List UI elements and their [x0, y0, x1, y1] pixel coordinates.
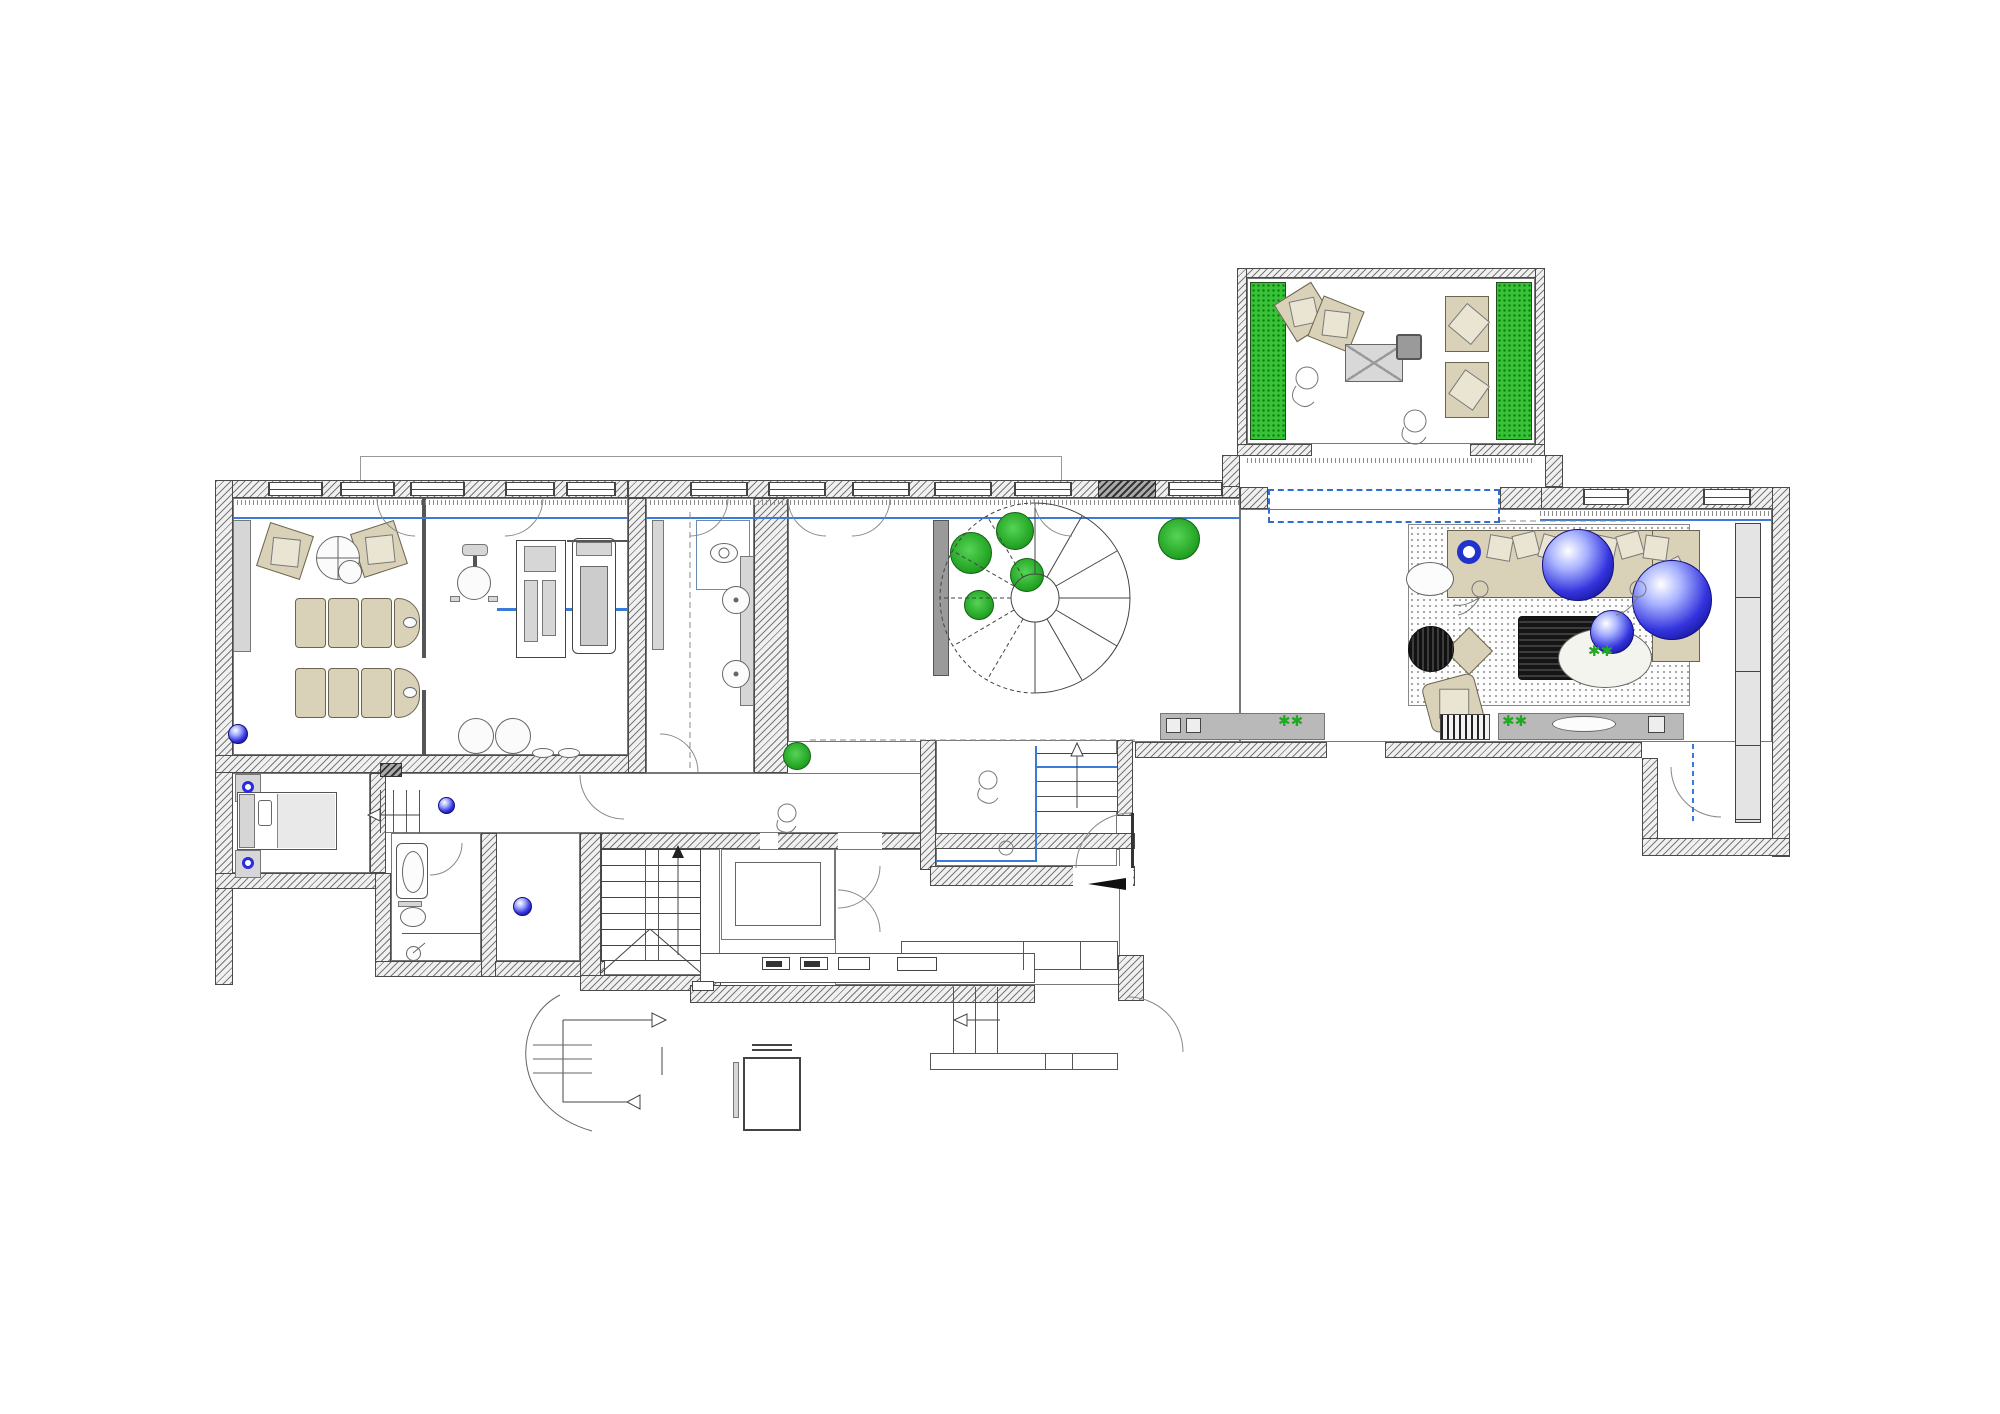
- sliding-door-opening: [1268, 489, 1500, 523]
- window: [690, 482, 748, 496]
- blue-sphere-large: [1542, 529, 1614, 601]
- platter: [1552, 716, 1616, 732]
- sofa-cushion: [1486, 534, 1514, 562]
- multigym-seat: [524, 546, 556, 572]
- hall-steps: [1037, 753, 1117, 812]
- door-gap-hall: [1073, 866, 1133, 886]
- wall-varanda-right: [1535, 268, 1545, 456]
- front-door-leaf: [1131, 813, 1134, 868]
- arrow-head-open: [627, 1095, 640, 1109]
- window: [934, 482, 992, 496]
- wall-kitchen-bottom: [690, 985, 1035, 1003]
- lamp-ring: [242, 781, 254, 793]
- round-black-pouf: [1408, 626, 1454, 672]
- varanda-table: [1345, 344, 1403, 382]
- bookshelf: [1440, 714, 1490, 740]
- glazing-line: [1540, 519, 1772, 521]
- wall-opening-stub-left: [1240, 487, 1268, 509]
- bed-headboard: [239, 794, 255, 848]
- insulation-strip: [1540, 511, 1772, 516]
- wall-lavabo-left: [628, 498, 646, 773]
- porch-joint: [1023, 941, 1024, 970]
- plant-icon: ✱✱: [1588, 644, 1613, 659]
- wall-varanda-bottom-right: [1470, 444, 1545, 456]
- plant-icon: [950, 532, 992, 574]
- partition-gym-2: [422, 690, 426, 755]
- exercise-bike-body: [457, 566, 491, 600]
- sofa-cushion: [1642, 534, 1669, 561]
- kitchen-appliance: [800, 957, 828, 970]
- exercise-bike-pedal: [450, 596, 460, 602]
- plant-icon: [996, 512, 1034, 550]
- massage-table-pad: [328, 598, 359, 648]
- plant-icon: ✱✱: [1278, 714, 1303, 729]
- step-line: [380, 790, 381, 833]
- wall-bath-bottom: [375, 961, 495, 977]
- gym-ball: [495, 718, 531, 754]
- window: [1583, 489, 1629, 505]
- treadmill-console: [576, 542, 612, 556]
- bed-pillow: [258, 800, 272, 826]
- kitchen-appliance: [762, 957, 790, 970]
- bed-blanket: [277, 794, 335, 848]
- stair-divider: [645, 849, 646, 961]
- plant-icon: [964, 590, 994, 620]
- shower-head: [406, 946, 421, 961]
- multigym-column: [524, 580, 538, 642]
- window: [1703, 489, 1751, 505]
- wall-dark-column: [1098, 480, 1156, 498]
- structural-column: [933, 520, 949, 676]
- lavabo-shelf: [652, 520, 664, 650]
- wall-vent-box: [692, 981, 714, 991]
- toilet-tank: [398, 901, 422, 907]
- main-staircase: [601, 849, 701, 961]
- wall-hall-right: [1117, 740, 1133, 816]
- exercise-bike-handle: [462, 544, 488, 556]
- wall-porch-right: [1118, 955, 1144, 1001]
- ceiling-lamp-sphere: [228, 724, 248, 744]
- exterior-step-line: [975, 987, 976, 1053]
- window: [566, 482, 616, 496]
- porch-joint: [1080, 941, 1081, 970]
- wall-varanda-conn-right: [1545, 455, 1563, 487]
- window: [768, 482, 826, 496]
- insulation-strip: [233, 500, 628, 505]
- wall-varanda-left: [1237, 268, 1247, 456]
- wall-hall-left: [920, 740, 936, 870]
- stair-divider: [658, 849, 659, 961]
- wall-bedroom-right: [370, 773, 386, 873]
- toilet: [400, 907, 426, 927]
- built-in-wardrobe: [1735, 523, 1761, 823]
- kitchen-oven: [897, 957, 937, 971]
- floor-plan: ✱✱ ✱✱ ✱✱: [0, 0, 2000, 1414]
- toilet: [710, 543, 738, 563]
- curve: [526, 995, 592, 1131]
- dumbwaiter-rail: [733, 1062, 739, 1118]
- wall-varanda-conn-left: [1222, 455, 1240, 487]
- wall-sala-bottom-1: [1135, 742, 1327, 758]
- exterior-curved-stair: [526, 995, 592, 1131]
- hall-step-line-blue: [1037, 766, 1117, 768]
- planter-right: [1496, 282, 1532, 440]
- treadmill-belt: [580, 566, 608, 646]
- varanda-chaise: [1445, 296, 1489, 352]
- sideboard-box: [1186, 718, 1201, 733]
- double-line: [752, 1044, 792, 1051]
- step-line: [406, 790, 407, 833]
- exterior-step-line: [953, 987, 954, 1053]
- step-line: [419, 790, 420, 833]
- window: [1168, 482, 1223, 496]
- window: [505, 482, 555, 496]
- wall-right: [1772, 487, 1790, 857]
- gym-ball: [458, 718, 494, 754]
- door-gap-cozinha: [838, 833, 882, 849]
- kitchen-appliance: [838, 957, 870, 970]
- blue-sphere-large: [1632, 560, 1712, 640]
- sink: [722, 660, 750, 688]
- window: [340, 482, 395, 496]
- bowl: [532, 748, 554, 758]
- insulation-strip: [1247, 458, 1535, 463]
- ceiling-lamp-sphere: [513, 897, 532, 916]
- lamp-ring: [242, 857, 254, 869]
- massage-table-pad: [361, 598, 392, 648]
- multigym-column: [542, 580, 556, 636]
- plant-icon: [783, 742, 811, 770]
- glazing-line: [233, 517, 628, 519]
- landing-joint: [1045, 1053, 1046, 1070]
- glazing-line: [646, 517, 1240, 519]
- massage-table-pad: [295, 598, 326, 648]
- gym-shelf-line: [567, 540, 628, 542]
- fan-ring: [1457, 540, 1481, 564]
- wall-varanda-top: [1237, 268, 1545, 278]
- door-gap-lavandaria: [760, 833, 778, 849]
- sink: [722, 586, 750, 614]
- exercise-bike-pedal: [488, 596, 498, 602]
- exterior-step-line: [997, 987, 998, 1053]
- wall-varanda-bottom-left: [1237, 444, 1312, 456]
- side-oval-table: [1406, 562, 1454, 596]
- wall-opening-stub-right: [1500, 487, 1542, 509]
- wall-sala-bottom-2: [1385, 742, 1642, 758]
- varanda-side-table: [1396, 334, 1422, 360]
- varanda-chaise: [1445, 362, 1489, 418]
- bowl: [558, 748, 580, 758]
- sideboard-box: [1166, 718, 1181, 733]
- dumbwaiter-box: [743, 1057, 801, 1131]
- lavandaria-counter: [735, 862, 821, 926]
- hall-step-line: [1037, 796, 1117, 797]
- window: [852, 482, 910, 496]
- wall-bath-right: [481, 833, 497, 977]
- wall-stair-left: [580, 833, 601, 991]
- lounge-closet: [233, 520, 251, 652]
- massage-table-pad: [295, 668, 326, 718]
- wall-lavabo-right: [754, 498, 788, 773]
- lounge-round-table-small: [338, 560, 362, 584]
- arrow-head-open: [652, 1013, 666, 1027]
- wall-dark-chimney: [380, 763, 402, 777]
- window: [410, 482, 465, 496]
- step-line: [393, 790, 394, 833]
- plant-icon: [1158, 518, 1200, 560]
- sideboard-box: [1648, 716, 1665, 733]
- ceiling-lamp-sphere: [438, 797, 455, 814]
- partition-gym-1: [422, 498, 426, 658]
- arrow-head-open: [954, 1014, 967, 1026]
- plant-icon: [1010, 558, 1044, 592]
- window: [268, 482, 323, 496]
- massage-table-pad: [328, 668, 359, 718]
- landing-joint: [1072, 1053, 1073, 1070]
- plant-icon: ✱✱: [1502, 714, 1527, 729]
- curve-steps: [533, 1045, 592, 1073]
- room-lobby: [495, 833, 580, 961]
- window: [1014, 482, 1072, 496]
- wall-sala-bottom-3: [1642, 838, 1790, 856]
- exterior-landing: [930, 1053, 1118, 1070]
- insulation-strip: [646, 500, 1240, 505]
- towel-rail: [402, 933, 482, 934]
- hall-step-line: [1037, 781, 1117, 782]
- pergola-outline: [360, 456, 1062, 482]
- massage-table-pad: [361, 668, 392, 718]
- bathtub: [396, 843, 428, 899]
